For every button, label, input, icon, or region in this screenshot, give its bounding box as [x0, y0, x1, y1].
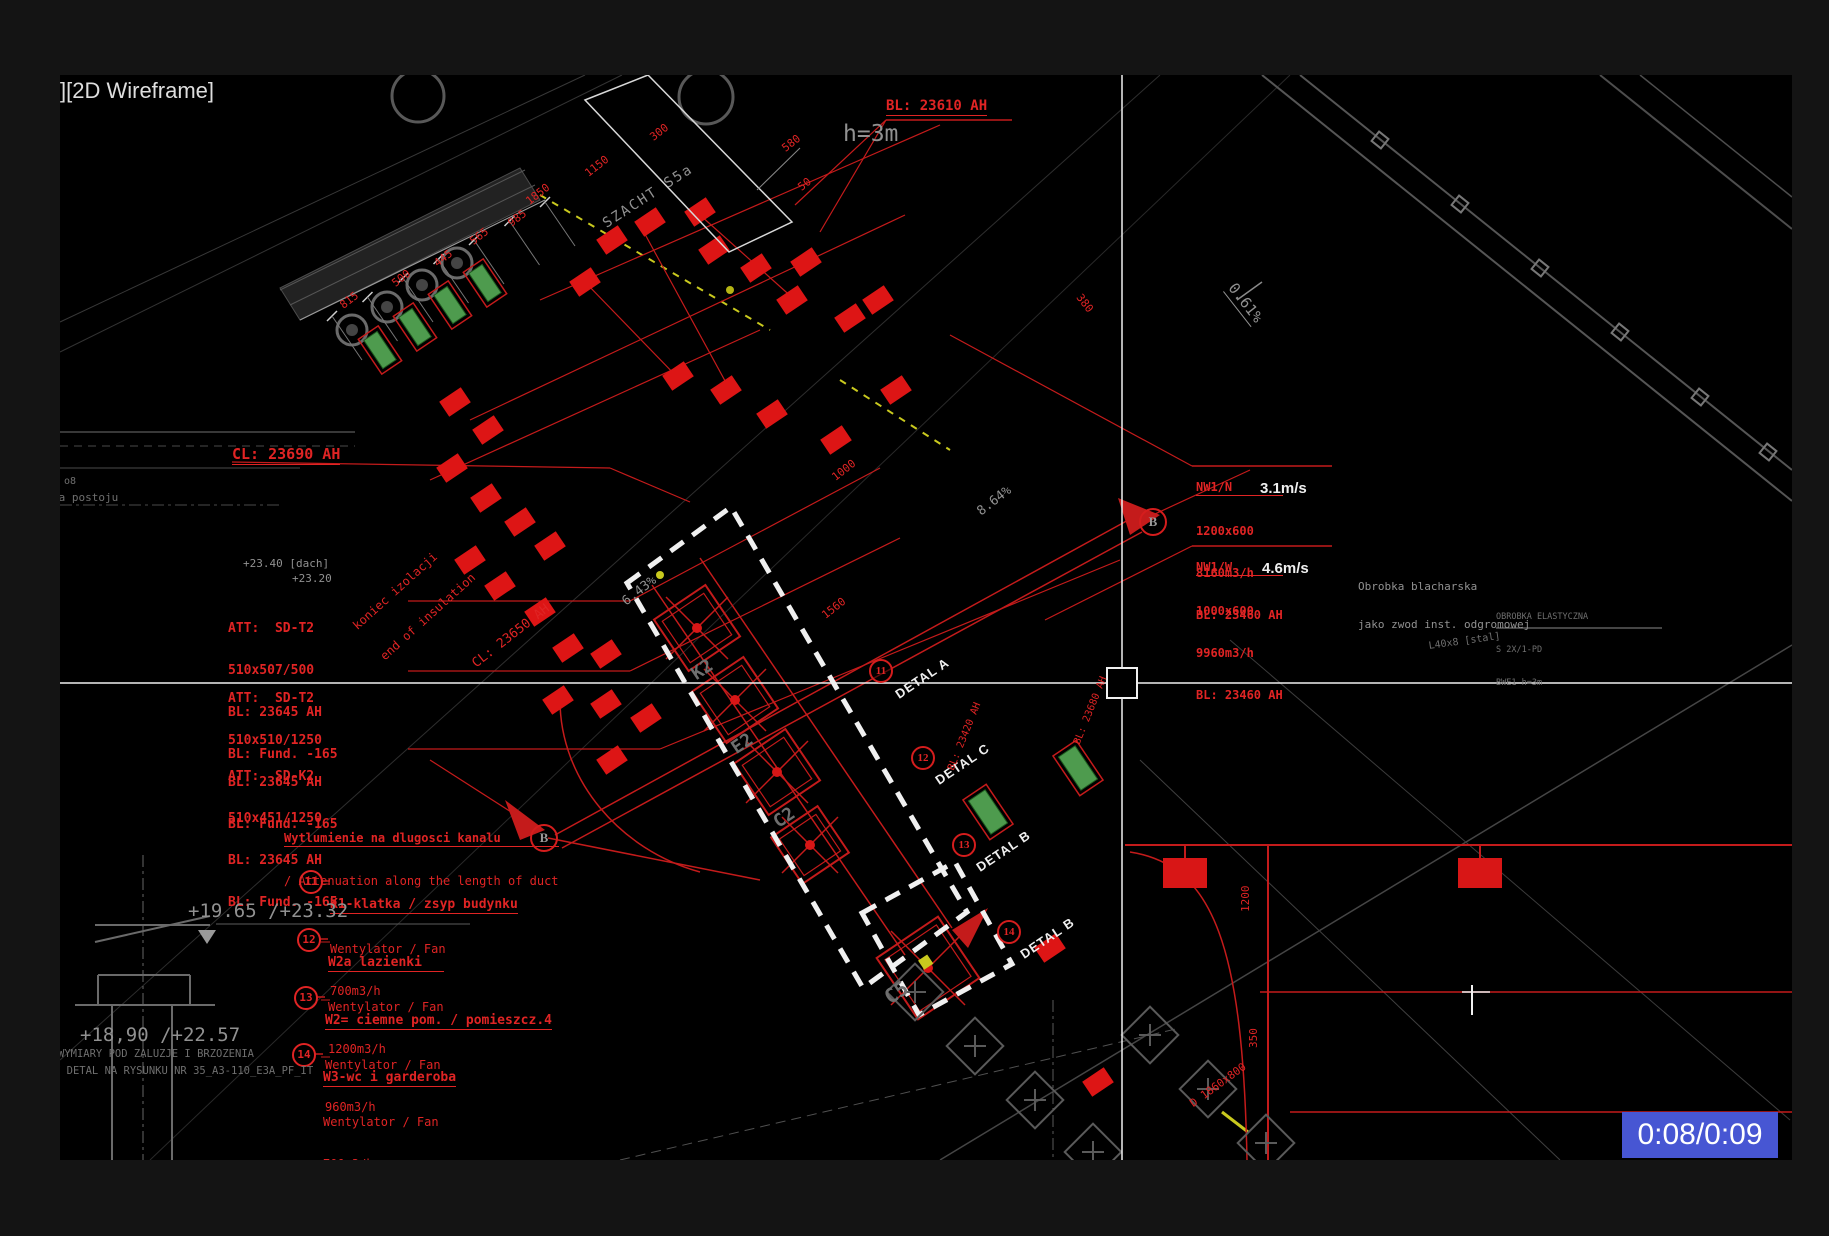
leader-flow2	[1045, 546, 1192, 620]
frame-bottom	[0, 1160, 1829, 1236]
duct-blob	[698, 235, 730, 264]
red-arc	[1130, 852, 1247, 1160]
roof-level-1: +23.40 [dach]	[243, 558, 329, 571]
duct-blob	[630, 703, 662, 732]
duct-blob	[710, 375, 742, 404]
vent-cap-center	[416, 279, 428, 291]
fan-hub	[772, 767, 782, 777]
cl-main-label: CL: 23690 AH	[232, 446, 340, 463]
duct-blob	[504, 507, 536, 536]
duct-blob	[542, 685, 574, 714]
dim-extension	[545, 202, 575, 246]
att1-line1: ATT: SD-T2	[228, 622, 338, 636]
red-duct	[540, 125, 940, 300]
flow2-rate: 9960m3/h	[1196, 646, 1283, 660]
duct-blob	[880, 375, 912, 404]
fan-hub	[692, 623, 702, 633]
duct-blob	[862, 285, 894, 314]
dim-1200: 1200	[1240, 886, 1253, 913]
leader-att3	[660, 560, 1120, 749]
flow1-velocity: 3.1m/s	[1260, 480, 1307, 497]
frame-right	[1792, 0, 1829, 1236]
level-a: +19.65 /+23.32	[188, 901, 348, 923]
caption-line-2: Y DETAL NA RYSUNKU NR 35_A3-110_E3A_PF_I…	[54, 1065, 313, 1077]
louvre-green	[364, 331, 396, 368]
dim-350: 350	[1248, 1028, 1261, 1048]
fence-line	[1262, 75, 1792, 501]
detail-callout-13: 13	[952, 833, 976, 857]
leader-att1	[630, 468, 880, 601]
red-duct-bend	[560, 700, 700, 872]
duct-blob	[1163, 858, 1207, 888]
cad-viewport[interactable]: ][2D Wireframe] 0:08/0:09 BL: 23610 AH h…	[0, 0, 1829, 1236]
bl-top-label: BL: 23610 AH	[886, 98, 987, 114]
small-note-3: BWE1 h=3m	[1496, 678, 1588, 689]
fan11-title: K1-klatka / zsyp budynku	[330, 898, 518, 914]
duct-blob	[590, 639, 622, 668]
fan14-number: 14	[292, 1043, 316, 1067]
duct-blob	[820, 425, 852, 454]
bg-diagonal	[940, 645, 1792, 1160]
fan-hub	[730, 695, 740, 705]
level-marker	[198, 930, 216, 944]
duct-blob	[590, 689, 622, 718]
yellow-tick	[1222, 1112, 1248, 1132]
duct-blob	[596, 745, 628, 774]
dim-extension	[332, 316, 362, 360]
o8-note: o8	[64, 476, 76, 488]
roof-level-2: +23.20	[292, 573, 332, 586]
cl-main-text: CL: 23690 AH	[232, 445, 340, 465]
duct-blob	[552, 633, 584, 662]
louvre-green	[1059, 746, 1098, 790]
red-duct	[430, 330, 760, 480]
detail-callout-14: 14	[997, 920, 1021, 944]
duct-blob	[756, 399, 788, 428]
leader-flow1	[950, 335, 1192, 466]
na-postoju-note: na postoju	[52, 492, 118, 505]
duct-blob	[1458, 858, 1502, 888]
duct-blob	[534, 531, 566, 560]
fan12-title: W2a lazienki	[328, 956, 444, 972]
louvre-green	[969, 790, 1008, 834]
leader-cl	[610, 468, 690, 502]
louvre-green	[399, 308, 431, 345]
yellow-dot	[656, 571, 664, 579]
small-note-2: S 2X/1-PD	[1496, 645, 1588, 656]
small-note: OBROBKA ELASTYCZNA S 2X/1-PD BWE1 h=3m	[1496, 590, 1588, 711]
duct-blob	[790, 247, 822, 276]
caption-line-1: WYMIARY POD ZALUZJE I BRZOZENIA	[58, 1048, 254, 1060]
frame-left	[0, 0, 60, 1236]
duct-blob	[776, 285, 808, 314]
duct-blob	[472, 415, 504, 444]
fan-hub	[805, 840, 815, 850]
duct-blob	[470, 483, 502, 512]
att2-line1: ATT: SD-T2	[228, 692, 338, 706]
vent-cap-center	[381, 301, 393, 313]
level-b: +18,90 /+22.57	[80, 1025, 240, 1047]
roof-penetration	[392, 70, 444, 122]
crosshair-pickbox	[1107, 668, 1137, 698]
fan11-number: 11	[299, 870, 323, 894]
fan14-title: W3-wc i garderoba	[323, 1071, 456, 1087]
red-duct	[548, 838, 760, 880]
duct-blob	[740, 253, 772, 282]
duct-blob	[834, 303, 866, 332]
duct-blob	[436, 453, 468, 482]
red-duct	[585, 282, 680, 380]
flow2-bl: BL: 23460 AH	[1196, 688, 1283, 702]
fan12-number: 12	[297, 928, 321, 952]
bl-top-text: BL: 23610 AH	[886, 98, 987, 116]
vent-cap-center	[346, 324, 358, 336]
yellow-dot	[726, 286, 734, 294]
bg-diagonal	[60, 75, 622, 352]
duct-blob	[569, 267, 601, 296]
header-edge	[290, 185, 535, 305]
fence-line	[1600, 75, 1792, 229]
flow2-size: 1000x600	[1196, 604, 1283, 618]
detail-callout-12: 12	[911, 746, 935, 770]
fan13-number: 13	[294, 986, 318, 1010]
duct-blob	[439, 387, 471, 416]
fan13-title: W2= ciemne pom. / pomieszcz.4	[325, 1014, 552, 1030]
viewport-style-label[interactable]: ][2D Wireframe]	[60, 78, 214, 103]
bg-diagonal	[1230, 640, 1790, 1120]
louvre-green	[469, 264, 501, 301]
small-note-1: OBROBKA ELASTYCZNA	[1496, 612, 1588, 623]
frame-top	[0, 0, 1829, 75]
detail-callout-11: 11	[869, 659, 893, 683]
height-label: h=3m	[843, 121, 898, 147]
leader-att2	[630, 538, 900, 671]
video-timestamp: 0:08/0:09	[1622, 1112, 1778, 1158]
fence-line	[1300, 75, 1792, 470]
fan14-type: Wentylator / Fan	[323, 1115, 456, 1129]
att3-line1: ATT: SD-K2	[228, 770, 338, 784]
section-marker-b1: B	[1139, 508, 1167, 536]
fence-line	[1640, 75, 1792, 197]
h3m-leader	[757, 148, 800, 190]
flow2-velocity: 4.6m/s	[1262, 560, 1309, 577]
section-marker-b2: B	[530, 824, 558, 852]
attenuation-pl: Wytlumienie na dlugosci kanalu	[284, 832, 559, 848]
